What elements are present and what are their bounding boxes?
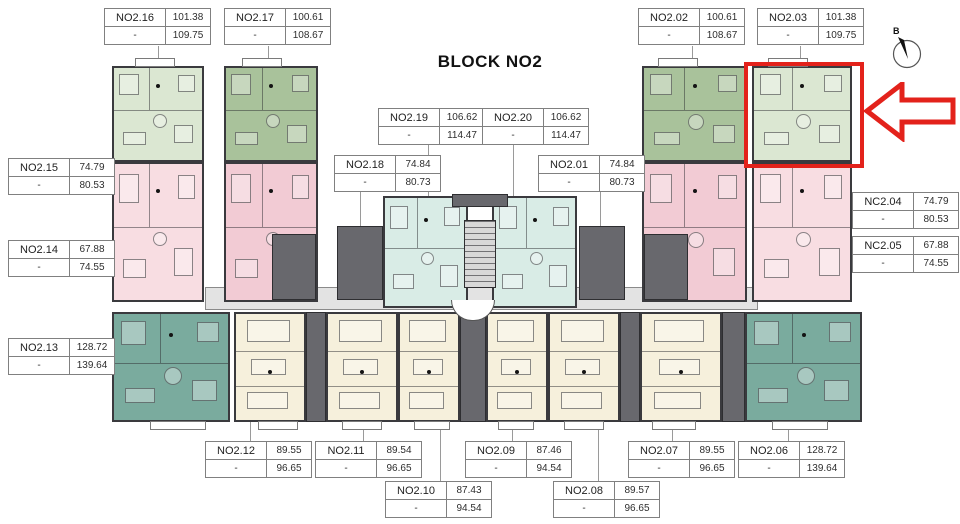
unit-area-top: 87.43 <box>447 482 491 499</box>
furniture <box>123 259 146 278</box>
unit-area-top: 106.62 <box>544 109 588 126</box>
unit-label-table-NO2.15: NO2.1574.79-80.53 <box>8 158 115 195</box>
furniture <box>247 392 288 409</box>
elevator-core <box>452 194 508 207</box>
leader-line <box>513 144 514 196</box>
balcony-stub <box>772 421 828 430</box>
furniture <box>561 392 602 409</box>
unit-no2-01 <box>579 226 625 300</box>
balcony-stub <box>414 421 450 430</box>
unit-label-table-NO2.18: NO2.1874.84-80.73 <box>334 155 441 192</box>
unit-name: NO2.01 <box>539 156 599 173</box>
unit-area-bottom: 109.75 <box>166 27 210 44</box>
unit-area-bottom: 80.73 <box>396 174 440 191</box>
dining-table <box>153 114 167 128</box>
unit-no2-16 <box>112 66 204 162</box>
dining-table <box>530 252 543 265</box>
unit-dash: - <box>386 500 446 517</box>
unit-dash: - <box>483 127 543 144</box>
furniture <box>502 274 523 289</box>
unit-no2-15 <box>112 162 204 302</box>
unit-label-table-NO2.10: NO2.1087.43-94.54 <box>385 481 492 518</box>
leader-line <box>600 191 601 226</box>
unit-name: NO2.13 <box>9 339 69 356</box>
balcony-stub <box>564 421 604 430</box>
room-divider <box>488 351 546 352</box>
room-divider <box>754 227 850 228</box>
unit-label-table-NO2.09: NO2.0987.46-94.54 <box>465 441 572 478</box>
furniture <box>713 125 735 143</box>
furniture <box>121 321 146 344</box>
compass-icon: B <box>880 20 938 78</box>
unit-area-top: 74.79 <box>914 193 958 210</box>
unit-label-table-NO2.13: NO2.13128.72-139.64 <box>8 338 115 375</box>
furniture <box>231 74 251 94</box>
room-divider <box>236 351 304 352</box>
furniture <box>718 175 737 199</box>
unit-area-bottom: 139.64 <box>70 357 114 374</box>
furniture <box>549 265 567 287</box>
unit-name: NO2.14 <box>9 241 69 258</box>
room-divider <box>236 386 304 387</box>
room-divider <box>226 227 316 228</box>
unit-name: NO2.10 <box>386 482 446 499</box>
room-divider <box>747 363 860 364</box>
plan-dot <box>533 218 537 222</box>
unit-no2-18 <box>337 226 383 300</box>
unit-area-bottom: 108.67 <box>700 27 744 44</box>
room-divider <box>400 351 458 352</box>
furniture <box>764 259 789 278</box>
dining-table <box>797 367 815 385</box>
leader-line <box>440 422 441 481</box>
unit-dash: - <box>539 174 599 191</box>
unit-label-table-NO2.17: NO2.17100.61-108.67 <box>224 8 331 45</box>
furniture <box>174 248 193 275</box>
furniture <box>497 392 532 409</box>
plan-dot <box>693 84 697 88</box>
plan-dot <box>269 84 273 88</box>
unit-label-table-NO2.03: NO2.03101.38-109.75 <box>757 8 864 45</box>
compass-north-label: B <box>893 26 900 36</box>
unit-no2-07 <box>640 312 722 422</box>
unit-area-top: 74.84 <box>396 156 440 173</box>
furniture <box>231 174 251 204</box>
unit-name: NO2.09 <box>466 442 526 459</box>
furniture <box>125 388 155 403</box>
unit-name: NO2.17 <box>225 9 285 26</box>
room-divider <box>328 386 396 387</box>
furniture <box>192 380 217 401</box>
leader-line <box>360 191 361 226</box>
room-divider <box>550 386 618 387</box>
room-divider <box>114 110 202 111</box>
unit-dash: - <box>466 460 526 477</box>
unit-dash: - <box>9 259 69 276</box>
furniture <box>444 207 459 226</box>
room-divider <box>550 351 618 352</box>
room-divider <box>494 248 575 249</box>
block-title: BLOCK NO2 <box>370 52 610 72</box>
plan-dot <box>269 189 273 193</box>
dining-table <box>266 114 280 128</box>
unit-area-top: 87.46 <box>527 442 571 459</box>
room-divider <box>385 248 466 249</box>
unit-area-top: 106.62 <box>440 109 484 126</box>
unit-highlight-box <box>744 62 864 168</box>
furniture <box>553 207 568 226</box>
balcony-stub <box>258 421 298 430</box>
unit-area-top: 89.55 <box>267 442 311 459</box>
unit-label-table-NO2.16: NO2.16101.38-109.75 <box>104 8 211 45</box>
unit-no2-17 <box>224 66 318 162</box>
unit-label-table-NO2.08: NO2.0889.57-96.65 <box>553 481 660 518</box>
furniture <box>650 174 672 204</box>
unit-dash: - <box>758 27 818 44</box>
room-divider <box>149 68 150 110</box>
unit-name: NC2.05 <box>853 237 913 254</box>
unit-area-bottom: 114.47 <box>440 127 484 144</box>
unit-area-top: 67.88 <box>70 241 114 258</box>
unit-label-table-NO2.02: NO2.02100.61-108.67 <box>638 8 745 45</box>
unit-area-bottom: 139.64 <box>800 460 844 477</box>
room-divider <box>328 351 396 352</box>
furniture <box>654 392 701 409</box>
unit-area-top: 100.61 <box>700 9 744 26</box>
unit-dash: - <box>853 211 913 228</box>
unit-area-top: 74.79 <box>70 159 114 176</box>
unit-dash: - <box>739 460 799 477</box>
furniture <box>339 392 380 409</box>
core-bottom-c <box>722 312 745 422</box>
unit-label-table-NC2.05: NC2.0567.88-74.55 <box>852 236 959 273</box>
unit-dash: - <box>554 500 614 517</box>
furniture <box>713 248 735 275</box>
balcony-stub <box>498 421 534 430</box>
furniture <box>174 125 193 143</box>
unit-area-top: 74.84 <box>600 156 644 173</box>
dining-table <box>153 232 167 246</box>
unit-no2-08 <box>548 312 620 422</box>
furniture <box>247 320 291 341</box>
unit-dash: - <box>853 255 913 272</box>
furniture <box>758 388 787 403</box>
stair-core <box>464 220 496 288</box>
room-divider <box>400 386 458 387</box>
unit-no2-12 <box>234 312 306 422</box>
furniture <box>409 392 444 409</box>
unit-area-bottom: 74.55 <box>914 255 958 272</box>
unit-label-table-NO2.01: NO2.0174.84-80.73 <box>538 155 645 192</box>
room-divider <box>114 363 228 364</box>
furniture <box>497 320 534 341</box>
room-divider <box>262 68 263 110</box>
unit-no2-20 <box>492 196 577 308</box>
room-divider <box>114 227 202 228</box>
balcony-stub <box>652 421 696 430</box>
unit-dash: - <box>629 460 689 477</box>
unit-name: NO2.07 <box>629 442 689 459</box>
balcony-stub <box>658 58 698 67</box>
plan-dot <box>156 84 160 88</box>
unit-dash: - <box>316 460 376 477</box>
room-divider <box>488 386 546 387</box>
unit-name: NO2.11 <box>316 442 376 459</box>
unit-area-top: 89.54 <box>377 442 421 459</box>
unit-name: NO2.03 <box>758 9 818 26</box>
unit-dash: - <box>225 27 285 44</box>
unit-nc2-04 <box>752 162 852 302</box>
furniture <box>654 320 704 341</box>
furniture <box>650 74 672 94</box>
room-divider <box>644 227 745 228</box>
core-bottom-center <box>460 312 486 422</box>
plan-dot <box>693 189 697 193</box>
unit-area-bottom: 94.54 <box>527 460 571 477</box>
unit-no2-09 <box>486 312 548 422</box>
unit-no2-10 <box>398 312 460 422</box>
unit-area-bottom: 94.54 <box>447 500 491 517</box>
room-divider <box>792 164 793 227</box>
furniture <box>235 259 258 278</box>
furniture <box>718 75 737 92</box>
core-left-wing <box>272 234 316 300</box>
core-bottom-a <box>306 312 326 422</box>
unit-name: NO2.12 <box>206 442 266 459</box>
room-divider <box>160 314 161 363</box>
unit-area-bottom: 108.67 <box>286 27 330 44</box>
plan-dot <box>156 189 160 193</box>
unit-area-bottom: 80.73 <box>600 174 644 191</box>
unit-dash: - <box>639 27 699 44</box>
unit-area-top: 128.72 <box>70 339 114 356</box>
unit-area-bottom: 80.53 <box>70 177 114 194</box>
unit-area-bottom: 80.53 <box>914 211 958 228</box>
furniture <box>119 174 138 204</box>
furniture <box>819 248 840 275</box>
unit-name: NO2.18 <box>335 156 395 173</box>
furniture <box>754 321 779 344</box>
balcony-stub <box>150 421 206 430</box>
unit-dash: - <box>9 177 69 194</box>
leader-line <box>250 422 251 441</box>
unit-area-bottom: 114.47 <box>544 127 588 144</box>
furniture <box>440 265 458 287</box>
furniture <box>499 206 517 230</box>
unit-name: NO2.16 <box>105 9 165 26</box>
furniture <box>409 320 446 341</box>
room-divider <box>226 110 316 111</box>
unit-label-table-NO2.19: NO2.19106.62-114.47 <box>378 108 485 145</box>
unit-no2-02 <box>642 66 747 162</box>
unit-area-top: 89.55 <box>690 442 734 459</box>
room-divider <box>644 110 745 111</box>
unit-name: NO2.02 <box>639 9 699 26</box>
balcony-stub <box>242 58 282 67</box>
furniture <box>824 175 842 199</box>
unit-area-top: 89.57 <box>615 482 659 499</box>
room-divider <box>642 351 720 352</box>
unit-label-table-NO2.14: NO2.1467.88-74.55 <box>8 240 115 277</box>
furniture <box>654 132 680 145</box>
furniture <box>390 206 408 230</box>
unit-area-bottom: 109.75 <box>819 27 863 44</box>
dining-table <box>688 232 704 248</box>
room-divider <box>149 164 150 227</box>
unit-name: NO2.15 <box>9 159 69 176</box>
furniture <box>197 322 219 341</box>
unit-area-bottom: 96.65 <box>615 500 659 517</box>
unit-no2-19 <box>383 196 468 308</box>
leader-line <box>598 422 599 481</box>
room-divider <box>262 164 263 227</box>
furniture <box>287 125 307 143</box>
room-divider <box>684 68 685 110</box>
unit-area-top: 67.88 <box>914 237 958 254</box>
unit-label-table-NO2.20: NO2.20106.62-114.47 <box>482 108 589 145</box>
unit-area-top: 101.38 <box>819 9 863 26</box>
plan-dot <box>802 333 806 337</box>
unit-area-bottom: 74.55 <box>70 259 114 276</box>
furniture <box>123 132 146 145</box>
unit-name: NO2.06 <box>739 442 799 459</box>
dining-table <box>164 367 182 385</box>
plan-dot <box>800 189 804 193</box>
plan-dot <box>424 218 428 222</box>
unit-name: NO2.19 <box>379 109 439 126</box>
furniture <box>824 380 849 401</box>
dining-table <box>421 252 434 265</box>
unit-no2-13 <box>112 312 230 422</box>
unit-name: NO2.08 <box>554 482 614 499</box>
furniture <box>119 74 138 94</box>
room-divider <box>792 314 793 363</box>
plan-dot <box>169 333 173 337</box>
unit-area-bottom: 96.65 <box>267 460 311 477</box>
core-right-wing <box>644 234 688 300</box>
highlight-arrow-icon <box>864 82 957 142</box>
furniture <box>561 320 605 341</box>
unit-label-table-NO2.06: NO2.06128.72-139.64 <box>738 441 845 478</box>
furniture <box>393 274 414 289</box>
unit-no2-06 <box>745 312 862 422</box>
furniture <box>178 175 195 199</box>
room-divider <box>684 164 685 227</box>
furniture <box>235 132 258 145</box>
unit-name: NO2.20 <box>483 109 543 126</box>
unit-label-table-NC2.04: NC2.0474.79-80.53 <box>852 192 959 229</box>
balcony-stub <box>135 58 175 67</box>
furniture <box>292 175 309 199</box>
unit-area-bottom: 96.65 <box>690 460 734 477</box>
room-divider <box>526 198 527 248</box>
core-bottom-b <box>620 312 640 422</box>
furniture <box>292 75 309 92</box>
unit-dash: - <box>335 174 395 191</box>
dining-table <box>796 232 811 247</box>
balcony-stub <box>342 421 382 430</box>
room-divider <box>642 386 720 387</box>
unit-area-top: 128.72 <box>800 442 844 459</box>
unit-label-table-NO2.11: NO2.1189.54-96.65 <box>315 441 422 478</box>
dining-table <box>688 114 704 130</box>
unit-dash: - <box>9 357 69 374</box>
unit-dash: - <box>105 27 165 44</box>
unit-name: NC2.04 <box>853 193 913 210</box>
room-divider <box>417 198 418 248</box>
unit-area-top: 101.38 <box>166 9 210 26</box>
unit-label-table-NO2.12: NO2.1289.55-96.65 <box>205 441 312 478</box>
unit-dash: - <box>379 127 439 144</box>
furniture <box>339 320 383 341</box>
unit-label-table-NO2.07: NO2.0789.55-96.65 <box>628 441 735 478</box>
furniture <box>829 322 850 341</box>
floorplan-canvas: BLOCK NO2 NO2.16101.38-109.75NO2.17100.6… <box>0 0 960 524</box>
unit-area-top: 100.61 <box>286 9 330 26</box>
furniture <box>178 75 195 92</box>
unit-dash: - <box>206 460 266 477</box>
unit-no2-11 <box>326 312 398 422</box>
furniture <box>760 174 781 204</box>
unit-area-bottom: 96.65 <box>377 460 421 477</box>
